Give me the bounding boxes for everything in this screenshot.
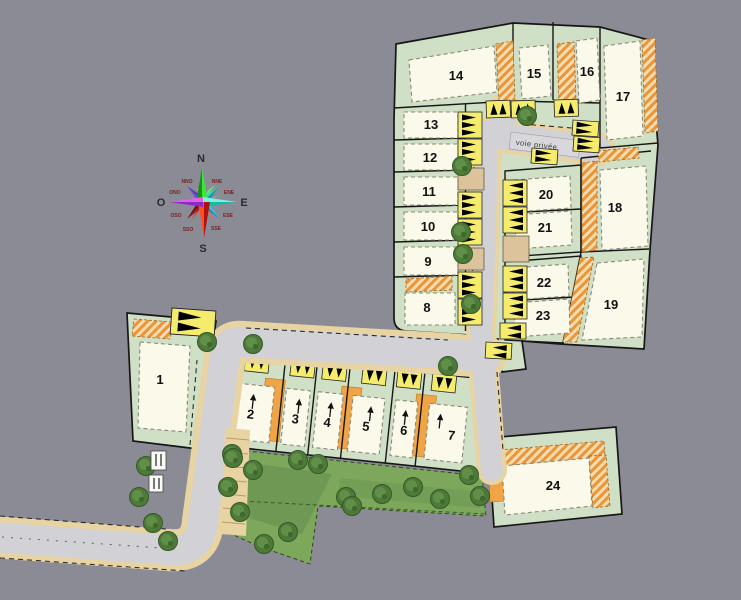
compass-sse: SSE <box>211 226 222 232</box>
lot-label-9: 9 <box>424 254 431 269</box>
lot-label-11: 11 <box>422 184 436 199</box>
compass-o: O <box>157 197 166 209</box>
compass-s: S <box>199 243 206 255</box>
lot-label-15: 15 <box>527 66 541 81</box>
lot-label-22: 22 <box>537 275 551 290</box>
lot-label-6: 6 <box>399 422 408 438</box>
lot-label-18: 18 <box>608 200 622 215</box>
compass-sso: SSO <box>183 227 194 233</box>
lot-label-10: 10 <box>421 219 435 234</box>
lot-label-2: 2 <box>246 406 255 422</box>
lot-label-21: 21 <box>538 220 552 235</box>
compass-ono: ONO <box>169 190 181 196</box>
lot-label-3: 3 <box>291 411 300 427</box>
compass-e: E <box>240 197 247 209</box>
lot-label-14: 14 <box>449 68 464 83</box>
lot-label-20: 20 <box>539 187 553 202</box>
compass-n: N <box>197 153 205 165</box>
lot-label-5: 5 <box>362 418 371 434</box>
compass-ese: ESE <box>223 213 234 219</box>
compass-oso: OSO <box>170 213 181 219</box>
lot-label-19: 19 <box>604 297 618 312</box>
lot-label-12: 12 <box>423 150 437 165</box>
site-plan: 2 3 4 5 6 7 <box>0 0 741 600</box>
lot-label-13: 13 <box>424 117 438 132</box>
compass-nne: NNE <box>212 179 223 185</box>
compass-nno: NNO <box>181 179 192 185</box>
lot-label-16: 16 <box>580 64 594 79</box>
lot-label-8: 8 <box>423 300 430 315</box>
lot-24-parcel <box>488 427 622 527</box>
lot-label-23: 23 <box>536 308 550 323</box>
lot-label-7: 7 <box>447 427 456 443</box>
compass-ene: ENE <box>224 190 235 196</box>
lot-label-1: 1 <box>156 372 163 387</box>
site-plan-svg: 2 3 4 5 6 7 <box>0 0 741 600</box>
lot-label-17: 17 <box>616 89 630 104</box>
lot-label-24: 24 <box>546 478 561 493</box>
